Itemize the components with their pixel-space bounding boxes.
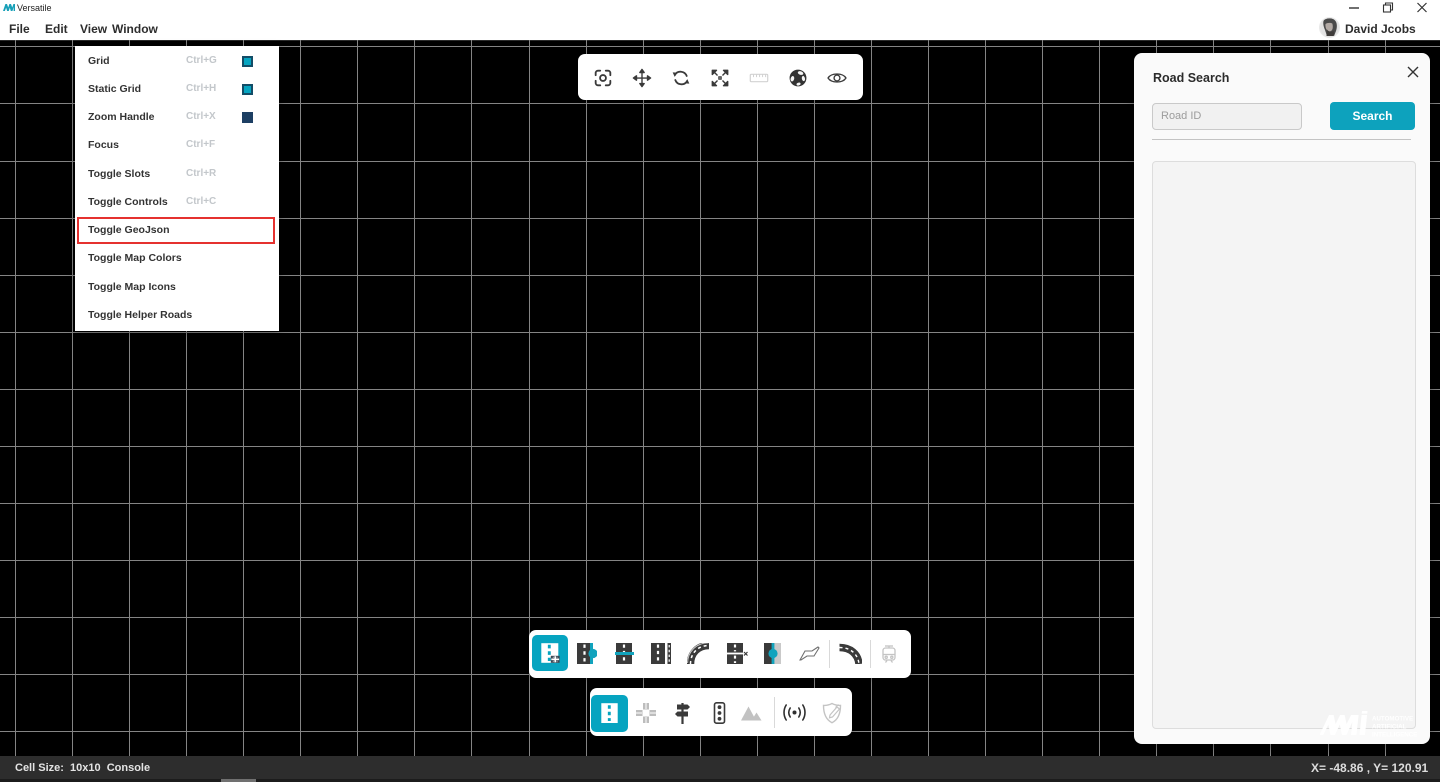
svg-text:INTELLIGENCE: INTELLIGENCE [1372, 732, 1417, 739]
svg-text:AUTOMOTIVE: AUTOMOTIVE [1372, 716, 1413, 723]
svg-text:ARTIFICIAL: ARTIFICIAL [1372, 724, 1407, 731]
